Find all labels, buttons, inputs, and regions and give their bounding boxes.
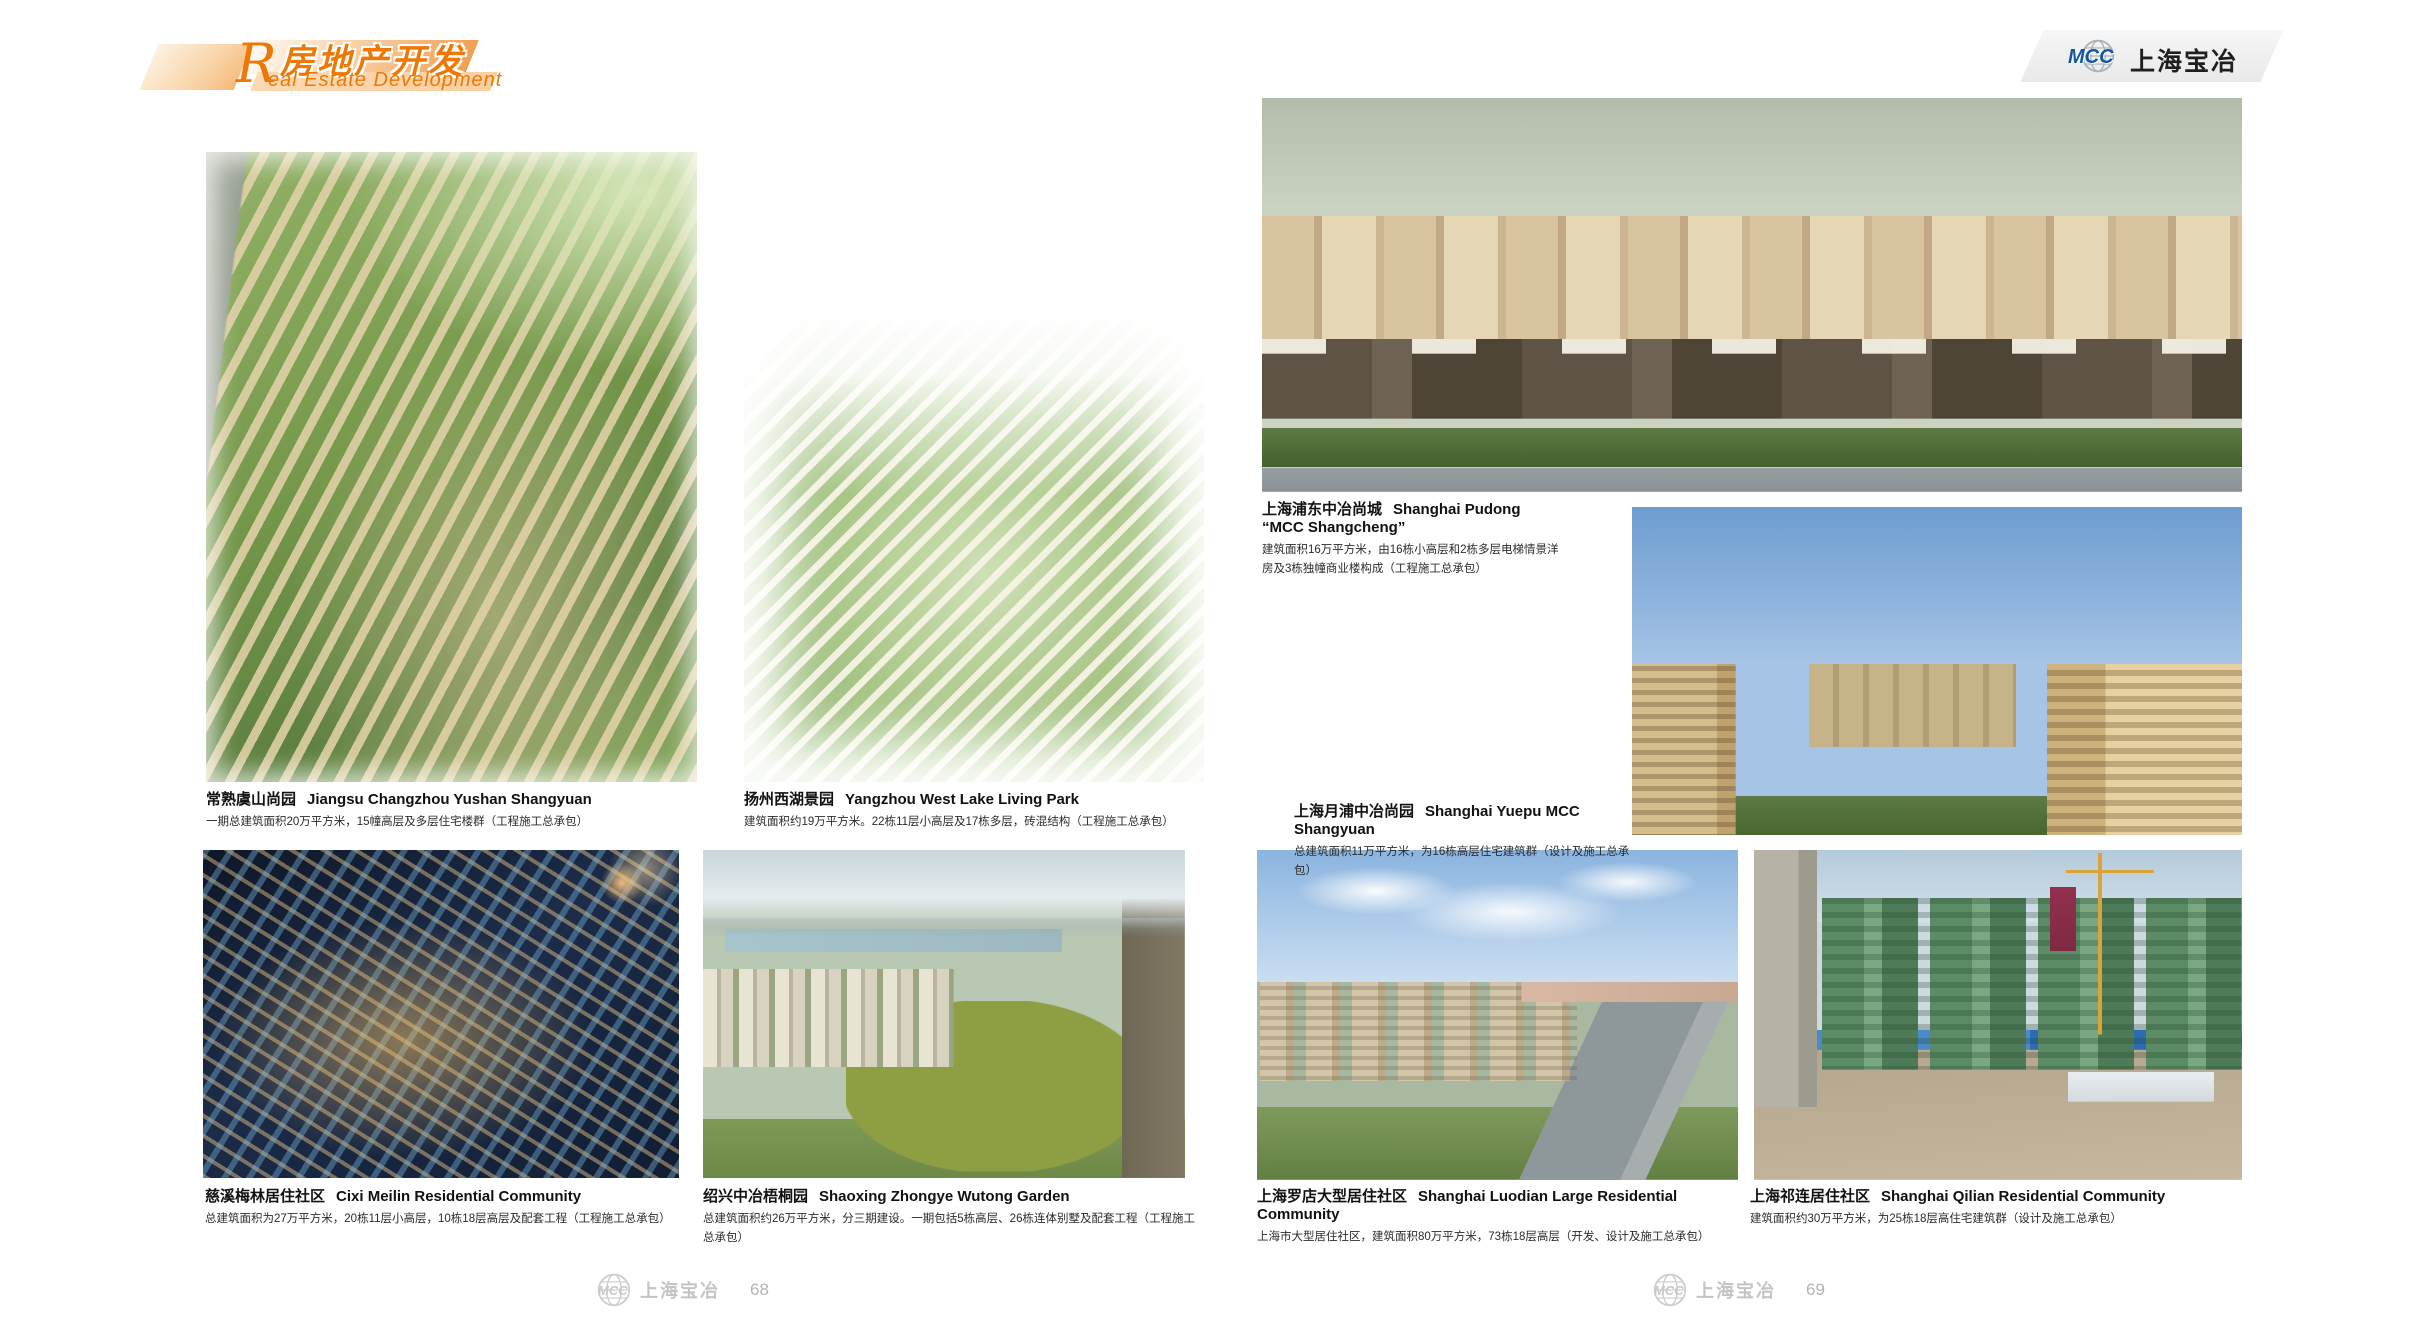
caption-title-en: Shaoxing Zhongye Wutong Garden bbox=[819, 1188, 1070, 1205]
caption-description: 建筑面积约19万平方米。22栋11层小高层及17栋多层，砖混结构（工程施工总承包… bbox=[744, 813, 1214, 832]
caption-title-en: Cixi Meilin Residential Community bbox=[336, 1188, 581, 1205]
caption-title: 扬州西湖景园Yangzhou West Lake Living Park bbox=[744, 791, 1214, 809]
caption-luodian: 上海罗店大型居住社区Shanghai Luodian Large Residen… bbox=[1257, 1188, 1737, 1247]
photo-changzhou-yushan-render bbox=[206, 152, 697, 782]
photo-yangzhou-westlake-render bbox=[744, 285, 1204, 782]
caption-description: 总建筑面积11万平方米，为16栋高层住宅建筑群（设计及施工总承包） bbox=[1294, 843, 1634, 881]
caption-title: 上海罗店大型居住社区Shanghai Luodian Large Residen… bbox=[1257, 1188, 1737, 1224]
caption-changzhou-yushan: 常熟虞山尚园Jiangsu Changzhou Yushan Shangyuan… bbox=[206, 791, 726, 832]
caption-description: 建筑面积约30万平方米，为25栋18层高住宅建筑群（设计及施工总承包） bbox=[1750, 1210, 2230, 1229]
caption-description: 一期总建筑面积20万平方米，15幢高层及多层住宅楼群（工程施工总承包） bbox=[206, 813, 726, 832]
footer-left: MCC 上海宝冶 68 bbox=[596, 1270, 769, 1310]
caption-title-cn: 上海月浦中冶尚园 bbox=[1294, 803, 1414, 820]
footer-company-name: 上海宝冶 bbox=[640, 1277, 720, 1303]
caption-title: 常熟虞山尚园Jiangsu Changzhou Yushan Shangyuan bbox=[206, 791, 726, 809]
brand-company-name: 上海宝冶 bbox=[2130, 42, 2238, 78]
caption-title: 绍兴中冶梧桐园Shaoxing Zhongye Wutong Garden bbox=[703, 1188, 1195, 1206]
page-number-right: 69 bbox=[1806, 1280, 1825, 1300]
page-number-left: 68 bbox=[750, 1280, 769, 1300]
caption-title-cn: 上海祁连居住社区 bbox=[1750, 1188, 1870, 1205]
caption-shaoxing-wutong: 绍兴中冶梧桐园Shaoxing Zhongye Wutong Garden 总建… bbox=[703, 1188, 1195, 1248]
mcc-logo-text: MCC bbox=[2068, 46, 2114, 69]
footer-mcc-text: MCC bbox=[598, 1283, 628, 1298]
caption-yuepu-shangyuan: 上海月浦中冶尚园Shanghai Yuepu MCC Shangyuan 总建筑… bbox=[1294, 803, 1634, 881]
photo-cixi-meilin-night-render bbox=[203, 850, 679, 1178]
brochure-spread: R 房地产开发 eal Estate Development MCC 上海宝冶 … bbox=[0, 0, 2428, 1326]
photo-shaoxing-wutong-aerial bbox=[703, 850, 1185, 1178]
section-title-en: eal Estate Development bbox=[268, 69, 502, 92]
photo-qilian-construction bbox=[1754, 850, 2242, 1180]
footer-company-name: 上海宝冶 bbox=[1696, 1277, 1776, 1303]
caption-title-cn: 绍兴中冶梧桐园 bbox=[703, 1188, 808, 1205]
caption-title-cn: 常熟虞山尚园 bbox=[206, 791, 296, 808]
caption-title-en: Yangzhou West Lake Living Park bbox=[845, 791, 1079, 808]
caption-description: 建筑面积16万平方米，由16栋小高层和2栋多层电梯情景洋房及3栋独幢商业楼构成（… bbox=[1262, 541, 1564, 579]
footer-mcc-logo: MCC bbox=[1652, 1272, 1688, 1308]
caption-title: 上海月浦中冶尚园Shanghai Yuepu MCC Shangyuan bbox=[1294, 803, 1634, 839]
caption-title-cn: 慈溪梅林居住社区 bbox=[205, 1188, 325, 1205]
caption-cixi-meilin: 慈溪梅林居住社区Cixi Meilin Residential Communit… bbox=[205, 1188, 715, 1229]
caption-title: 上海浦东中冶尚城Shanghai Pudong “MCC Shangcheng” bbox=[1262, 501, 1564, 537]
photo-yuepu-mcc-shangyuan bbox=[1632, 507, 2242, 835]
caption-description: 上海市大型居住社区，建筑面积80万平方米，73栋18层高层（开发、设计及施工总承… bbox=[1257, 1228, 1737, 1247]
caption-title-cn: 上海罗店大型居住社区 bbox=[1257, 1188, 1407, 1205]
caption-description: 总建筑面积为27万平方米，20栋11层小高层，10栋18层高层及配套工程（工程施… bbox=[205, 1210, 715, 1229]
footer-right: MCC 上海宝冶 69 bbox=[1652, 1270, 1825, 1310]
caption-description: 总建筑面积约26万平方米，分三期建设。一期包括5栋高层、26栋连体别墅及配套工程… bbox=[703, 1210, 1195, 1248]
caption-pudong-shangcheng: 上海浦东中冶尚城Shanghai Pudong “MCC Shangcheng”… bbox=[1262, 501, 1564, 579]
caption-title-en: Shanghai Qilian Residential Community bbox=[1881, 1188, 2165, 1205]
caption-title-cn: 上海浦东中冶尚城 bbox=[1262, 501, 1382, 518]
caption-title: 上海祁连居住社区Shanghai Qilian Residential Comm… bbox=[1750, 1188, 2230, 1206]
caption-title-cn: 扬州西湖景园 bbox=[744, 791, 834, 808]
photo-pudong-mcc-shangcheng bbox=[1262, 98, 2242, 492]
caption-title: 慈溪梅林居住社区Cixi Meilin Residential Communit… bbox=[205, 1188, 715, 1206]
photo-luodian-community bbox=[1257, 850, 1738, 1180]
caption-qilian: 上海祁连居住社区Shanghai Qilian Residential Comm… bbox=[1750, 1188, 2230, 1229]
footer-mcc-logo: MCC bbox=[596, 1272, 632, 1308]
caption-yangzhou-westlake: 扬州西湖景园Yangzhou West Lake Living Park 建筑面… bbox=[744, 791, 1214, 832]
caption-title-en: Jiangsu Changzhou Yushan Shangyuan bbox=[307, 791, 592, 808]
footer-mcc-text: MCC bbox=[1654, 1283, 1684, 1298]
